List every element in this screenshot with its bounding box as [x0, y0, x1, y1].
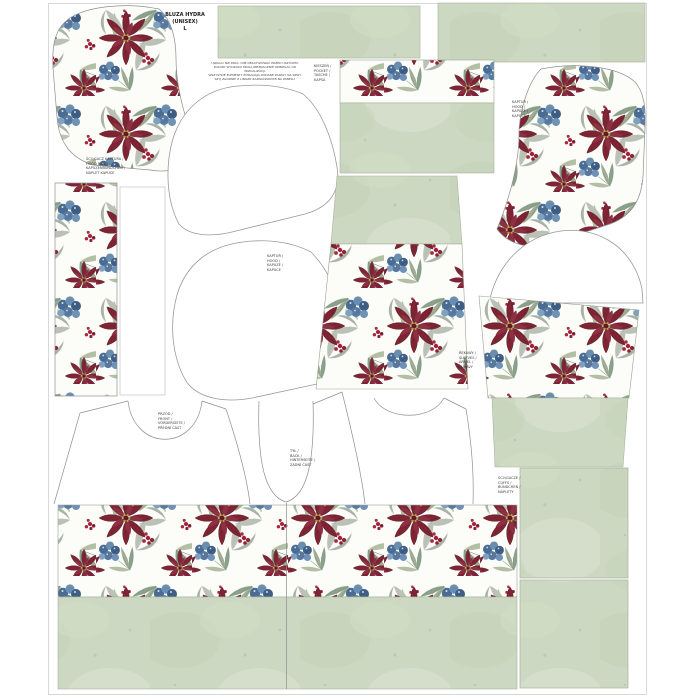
- care-line: SZYJ ZGODNIE Z LINIAMI ZAZNACZONYMI NA P…: [205, 77, 305, 81]
- green-block-top-right: [438, 3, 645, 62]
- label-line: KAPTUR /: [267, 254, 283, 259]
- sleeve-left-floral: [316, 244, 468, 389]
- label-line: KAPUZE /: [512, 109, 528, 114]
- label-back: TYŁ / BACK / HINTERSEITE / ZADNÍ ČÁST: [290, 449, 315, 467]
- label-line: KAPUZE /: [267, 263, 283, 268]
- label-line: KIESZEŃ /: [314, 64, 331, 69]
- sleeve-left-green: [331, 176, 462, 244]
- label-line: KAPTUR /: [512, 100, 528, 105]
- label-hood-trim: ŚCIĄGACZ KAPTURA / HOOD BAND / KAPUZENBÜ…: [86, 157, 125, 175]
- label-hood-right: KAPTUR / HOOD / KAPUZE / KAPUCE: [512, 100, 528, 118]
- pocket-piece-floral-band: [340, 60, 494, 103]
- label-line: KAPUCE: [512, 114, 528, 119]
- care-line: KOLORY WYDRUKU MOGĄ NIEZNACZNIE ODBIEGAĆ…: [205, 65, 305, 73]
- panel-title-name: BLUZA HYDRA: [165, 12, 205, 19]
- sleeve-right-green: [492, 398, 628, 467]
- label-line: HINTERSEITE /: [290, 458, 315, 463]
- label-cuffs: ŚCIĄGACZE / CUFFS / BÜNDCHEN / NÁPLETY: [498, 476, 520, 494]
- cuff-block-top: [520, 468, 628, 578]
- hood-piece-outline-upper: [168, 85, 338, 235]
- label-line: RĘKAWY /: [459, 351, 477, 356]
- hood-trim-strip-floral: [55, 183, 117, 396]
- care-instructions: UWAGA! NIE PRAĆ I NIE DEKATYZOWAĆ PRZED …: [205, 61, 305, 81]
- label-line: KAPUCE: [267, 268, 283, 273]
- label-front: PRZÓD / FRONT / VORDERSEITE / PŘEDNÍ ČÁS…: [158, 412, 185, 430]
- label-hood-center: KAPTUR / HOOD / KAPUZE / KAPUCE: [267, 254, 283, 272]
- label-line: RUKÁVY: [459, 365, 477, 370]
- sleeve-right-floral: [479, 296, 639, 398]
- pocket-piece-green: [340, 103, 494, 173]
- label-line: NÁPLETY: [498, 490, 520, 495]
- label-line: KAPUZENBÜNDCHEN /: [86, 166, 125, 171]
- label-pocket: KIESZEŃ / POCKET / TASCHE / KAPSA: [314, 64, 331, 82]
- bodice-floral-band: [58, 505, 517, 597]
- panel-title: BLUZA HYDRA (UNISEX) L: [165, 12, 205, 32]
- label-line: NÁPLET KAPUCE: [86, 171, 125, 176]
- label-line: VORDERSEITE /: [158, 421, 185, 426]
- label-line: BÜNDCHEN /: [498, 485, 520, 490]
- label-sleeves: RĘKAWY / SLEEVES / ÄRMEL / RUKÁVY: [459, 351, 477, 369]
- panel-title-fit: (UNISEX): [165, 19, 205, 26]
- hood-trim-strip-outline: [120, 187, 165, 395]
- label-line: TASCHE /: [314, 73, 331, 78]
- hood-piece-floral-right: [497, 66, 645, 246]
- label-line: PŘEDNÍ ČÁST: [158, 426, 185, 431]
- green-block-top-left: [218, 6, 420, 58]
- bodice-green-hem: [58, 597, 517, 689]
- cuff-block-bottom: [520, 580, 628, 688]
- pattern-panel-svg: [0, 0, 700, 700]
- fabric-panel: BLUZA HYDRA (UNISEX) L UWAGA! NIE PRAĆ I…: [0, 0, 700, 700]
- label-line: ŚCIĄGACZ KAPTURA /: [86, 157, 125, 162]
- label-line: KAPSA: [314, 78, 331, 83]
- label-line: ŚCIĄGACZE /: [498, 476, 520, 481]
- panel-title-size: L: [165, 26, 205, 33]
- label-line: ZADNÍ ČÁST: [290, 463, 315, 468]
